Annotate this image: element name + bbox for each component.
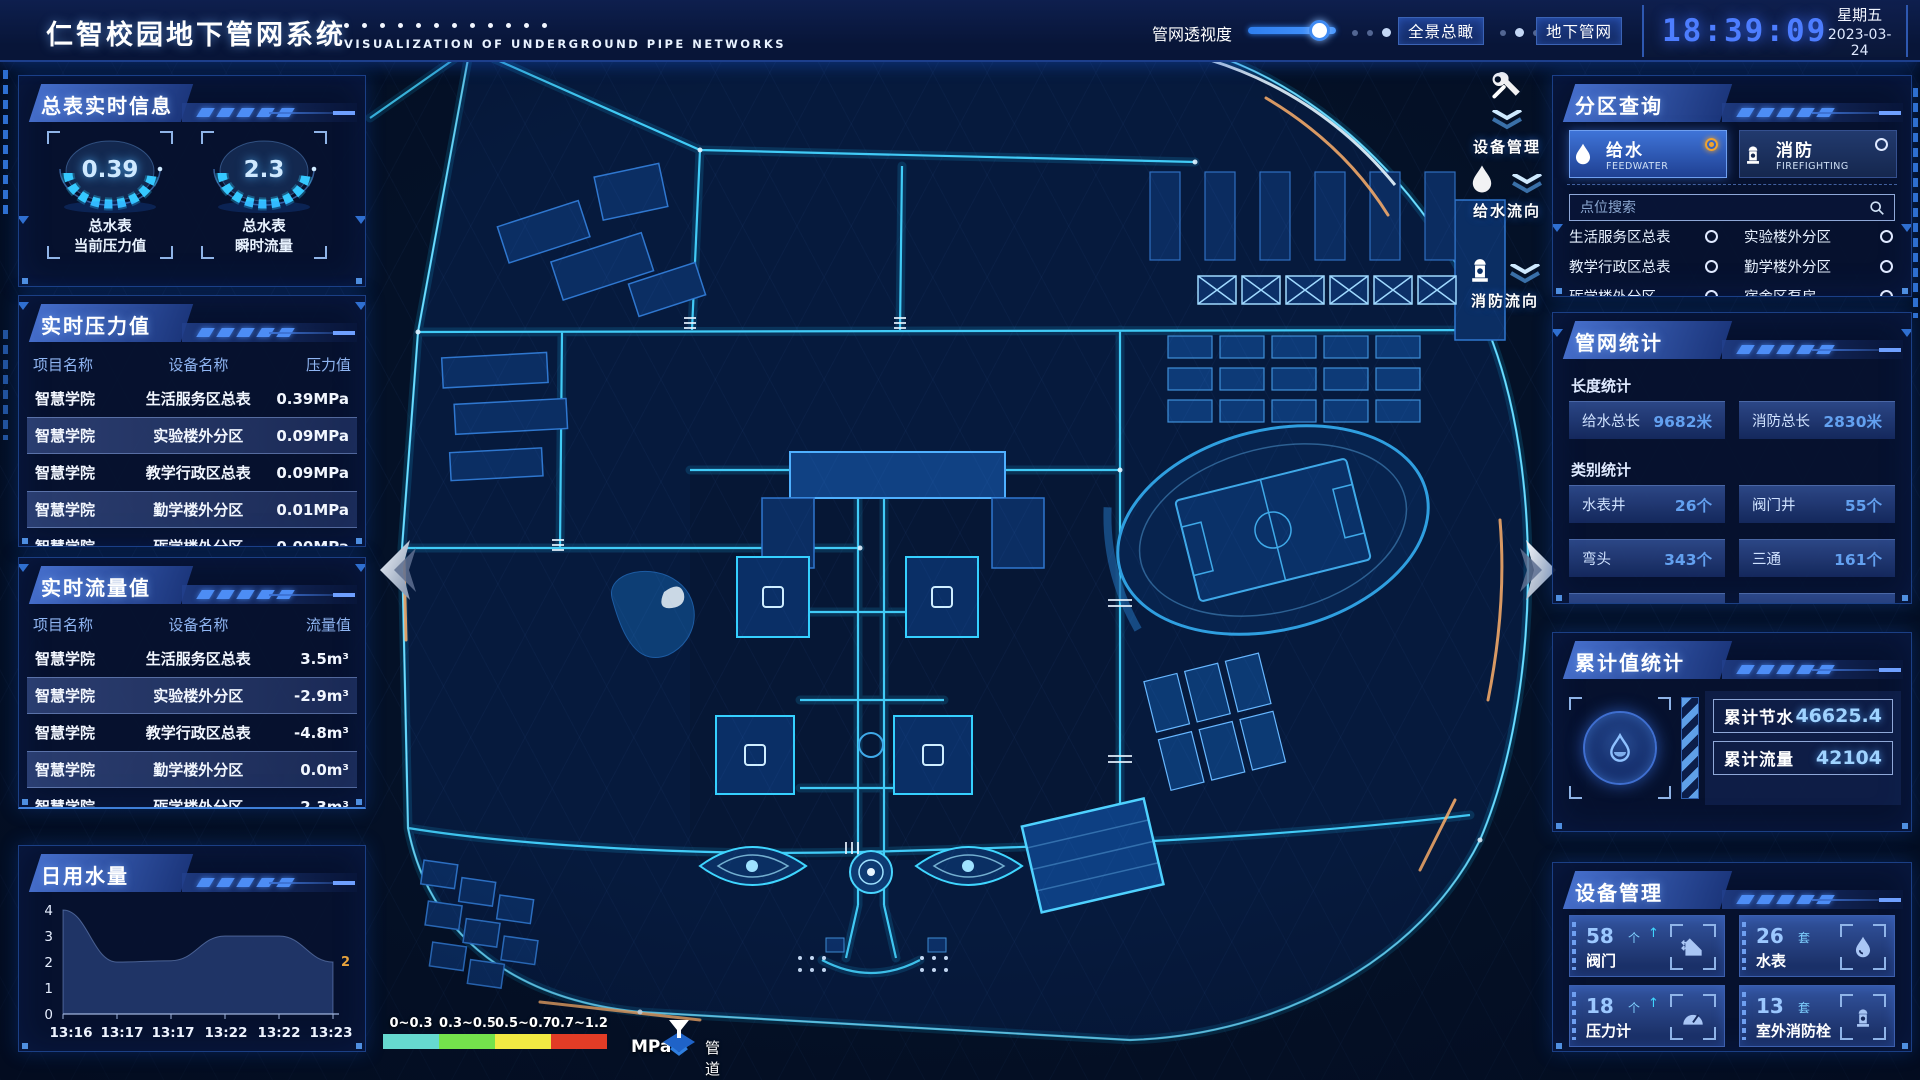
section-title: 分区查询 bbox=[1575, 90, 1663, 119]
gauge-value: 0.39 bbox=[47, 157, 173, 183]
chevron-down-icon bbox=[1505, 174, 1549, 196]
svg-text:4: 4 bbox=[44, 903, 53, 919]
table-header: 项目名称 设备名称 压力值 bbox=[33, 354, 351, 375]
tab-label: 消防 bbox=[1776, 136, 1849, 161]
pressure-gauge-icon bbox=[1670, 994, 1716, 1040]
svg-text:13:17: 13:17 bbox=[152, 1025, 195, 1041]
table-row: 智慧学院实验楼外分区0.09MPa bbox=[27, 417, 357, 454]
svg-text:1: 1 bbox=[44, 981, 53, 997]
legend-range-labels: 0~0.3 0.3~0.5 0.5~0.7 0.7~1.2 bbox=[383, 1016, 607, 1031]
device-card-valve[interactable]: 58 个 ↑ 阀门 bbox=[1569, 915, 1725, 977]
table-row: 智慧学院教学行政区总表0.09MPa bbox=[27, 454, 357, 491]
legend-range-label: 0.5~0.7 bbox=[495, 1016, 551, 1031]
stat-box-clipped bbox=[1569, 593, 1725, 604]
column-header: 项目名称 bbox=[33, 354, 128, 375]
stat-box: 阀门井 55个 bbox=[1739, 485, 1895, 523]
float-label: 消防流向 bbox=[1462, 290, 1548, 311]
app-title: 仁智校园地下管网系统 bbox=[46, 13, 346, 52]
water-drop-icon bbox=[1604, 732, 1636, 764]
flow-table: 智慧学院生活服务区总表3.5m³ 智慧学院实验楼外分区-2.9m³ 智慧学院教学… bbox=[27, 640, 357, 809]
realtime-pressure-section: 实时压力值 项目名称 设备名称 压力值 智慧学院生活服务区总表0.39MPa 智… bbox=[18, 295, 366, 547]
clock-panel: 18:39:09 星期五 2023-03-24 bbox=[1642, 5, 1908, 57]
zone-item[interactable]: 砺学楼外分区 bbox=[1569, 281, 1732, 297]
master-meter-section: 总表实时信息 0.39 总水表 当前压力值 bbox=[18, 75, 366, 287]
cumulative-row: 累计节水 46625.4 bbox=[1713, 699, 1893, 733]
arrow-up-icon: ↑ bbox=[1648, 926, 1659, 941]
legend-title: 管道压力 bbox=[705, 1037, 721, 1080]
tab-firefighting[interactable]: 消防 FIREFIGHTING bbox=[1739, 130, 1897, 178]
svg-text:13:22: 13:22 bbox=[205, 1025, 248, 1041]
legend-color-segment bbox=[495, 1034, 551, 1049]
zone-radio[interactable] bbox=[1705, 290, 1718, 298]
stat-box: 给水总长 9682米 bbox=[1569, 401, 1725, 439]
zone-radio[interactable] bbox=[1705, 230, 1718, 243]
table-row: 智慧学院勤学楼外分区0.01MPa bbox=[27, 491, 357, 528]
section-title: 日用水量 bbox=[41, 860, 129, 889]
slider-knob[interactable] bbox=[1309, 20, 1330, 41]
pipe-opacity-slider[interactable] bbox=[1248, 27, 1336, 34]
zone-radio[interactable] bbox=[1880, 230, 1893, 243]
table-row: 智慧学院生活服务区总表0.39MPa bbox=[27, 380, 357, 417]
section-header: 累计值统计 bbox=[1561, 641, 1903, 679]
chevron-down-icon bbox=[1485, 110, 1529, 132]
stat-box: 水表井 26个 bbox=[1569, 485, 1725, 523]
gauge-value: 2.3 bbox=[201, 157, 327, 183]
legend-range-label: 0~0.3 bbox=[383, 1016, 439, 1031]
app-header: 仁智校园地下管网系统 VISUALIZATION OF UNDERGROUND … bbox=[0, 0, 1920, 62]
device-management-section: 设备管理 58 个 ↑ 阀门 26 套 水表 bbox=[1552, 862, 1912, 1052]
section-header: 管网统计 bbox=[1561, 321, 1903, 359]
column-header: 设备名称 bbox=[128, 354, 268, 375]
float-label: 设备管理 bbox=[1464, 136, 1550, 157]
section-title: 设备管理 bbox=[1575, 877, 1663, 906]
dots-decoration bbox=[1500, 28, 1539, 37]
device-card-outdoor-hydrant[interactable]: 13 套 室外消防栓 bbox=[1739, 985, 1895, 1047]
column-header: 设备名称 bbox=[128, 614, 268, 635]
tab-feedwater[interactable]: 给水 FEEDWATER bbox=[1569, 130, 1727, 178]
tab-radio[interactable] bbox=[1875, 138, 1888, 151]
tab-sublabel: FEEDWATER bbox=[1606, 161, 1668, 172]
zone-radio[interactable] bbox=[1705, 260, 1718, 273]
hydrant-icon bbox=[1740, 141, 1766, 167]
stat-box: 三通 161个 bbox=[1739, 539, 1895, 577]
column-header: 项目名称 bbox=[33, 614, 128, 635]
search-box bbox=[1569, 194, 1895, 221]
zone-query-section: 分区查询 给水 FEEDWATER 消防 FIREFIGHTING bbox=[1552, 75, 1912, 297]
tab-label: 给水 bbox=[1606, 136, 1668, 161]
edge-decoration bbox=[1913, 88, 1918, 318]
search-icon[interactable] bbox=[1868, 199, 1886, 217]
svg-text:2: 2 bbox=[44, 955, 53, 971]
gauge-label: 总水表 bbox=[201, 215, 327, 236]
svg-text:13:16: 13:16 bbox=[50, 1025, 93, 1041]
water-drop-icon bbox=[1465, 162, 1499, 196]
cumulative-icon-box bbox=[1569, 697, 1671, 799]
legend-range-label: 0.3~0.5 bbox=[439, 1016, 495, 1031]
table-row: 智慧学院生活服务区总表3.5m³ bbox=[27, 640, 357, 677]
section-header: 实时流量值 bbox=[27, 566, 357, 604]
pipe-stats-section: 管网统计 长度统计 给水总长 9682米 消防总长 2830米 类别统计 水表井… bbox=[1552, 312, 1912, 604]
pipe-opacity-label: 管网透视度 bbox=[1152, 21, 1232, 45]
table-row: 智慧学院砺学楼外分区2.3m³ bbox=[27, 788, 357, 809]
table-row: 智慧学院砺学楼外分区0.00MPa bbox=[27, 528, 357, 547]
zone-item[interactable]: 教学行政区总表 bbox=[1569, 251, 1732, 281]
arrow-up-icon: ↑ bbox=[1648, 996, 1659, 1011]
wrench-icon bbox=[1488, 68, 1526, 106]
edge-decoration bbox=[3, 330, 8, 440]
stat-box: 消防总长 2830米 bbox=[1739, 401, 1895, 439]
svg-text:13:17: 13:17 bbox=[101, 1025, 144, 1041]
column-header: 压力值 bbox=[268, 354, 351, 375]
gauge-label: 当前压力值 bbox=[47, 235, 173, 256]
float-label: 给水流向 bbox=[1464, 200, 1550, 221]
legend-color-segment bbox=[551, 1034, 607, 1049]
pressure-gauge: 0.39 总水表 当前压力值 bbox=[47, 131, 173, 259]
zone-radio[interactable] bbox=[1880, 290, 1893, 298]
svg-text:2: 2 bbox=[341, 955, 350, 970]
cumulative-row: 累计流量 42104 bbox=[1713, 741, 1893, 775]
device-card-water-meter[interactable]: 26 套 水表 bbox=[1739, 915, 1895, 977]
dashboard-root: 设备管理 给水流向 消防流向 bbox=[0, 0, 1920, 1080]
section-header: 设备管理 bbox=[1561, 871, 1903, 909]
legend-range-label: 0.7~1.2 bbox=[551, 1016, 607, 1031]
clock-weekday: 星期五 bbox=[1827, 4, 1892, 25]
table-header: 项目名称 设备名称 流量值 bbox=[33, 614, 351, 635]
legend-color-segment bbox=[383, 1034, 439, 1049]
section-header: 日用水量 bbox=[27, 854, 357, 892]
cumulative-values: 累计节水 46625.4 累计流量 42104 bbox=[1705, 691, 1901, 805]
table-row: 智慧学院实验楼外分区-2.9m³ bbox=[27, 677, 357, 714]
app-subtitle: VISUALIZATION OF UNDERGROUND PIPE NETWOR… bbox=[344, 37, 786, 51]
feedwater-flow-map-button[interactable]: 给水流向 bbox=[1464, 162, 1550, 221]
svg-text:13:23: 13:23 bbox=[310, 1025, 353, 1041]
pipe-pressure-legend: 0~0.3 0.3~0.5 0.5~0.7 0.7~1.2 MPa 管道压力 bbox=[383, 1016, 607, 1049]
cumulative-stats-section: 累计值统计 累计节水 46625.4 累计流量 42104 bbox=[1552, 632, 1912, 832]
stats-group-label: 类别统计 bbox=[1571, 459, 1631, 480]
hydrant-icon bbox=[1463, 252, 1497, 286]
search-input[interactable] bbox=[1570, 200, 1868, 216]
dots-decoration bbox=[1352, 28, 1391, 37]
section-title: 总表实时信息 bbox=[41, 90, 173, 119]
device-manage-map-button[interactable]: 设备管理 bbox=[1464, 68, 1550, 157]
zone-list: 生活服务区总表 实验楼外分区 教学行政区总表 勤学楼外分区 砺学楼外分区 宿舍区… bbox=[1569, 221, 1895, 297]
clock-date: 2023-03-24 bbox=[1827, 27, 1892, 59]
valve-icon bbox=[1670, 924, 1716, 970]
table-row: 智慧学院勤学楼外分区0.0m³ bbox=[27, 751, 357, 788]
water-meter-icon bbox=[1840, 924, 1886, 970]
tab-radio[interactable] bbox=[1705, 138, 1718, 151]
daily-water-chart: 4 3 2 1 0 13:16 13:17 13:17 13:22 13:22 … bbox=[23, 896, 363, 1048]
svg-text:13:22: 13:22 bbox=[258, 1025, 301, 1041]
section-title: 实时压力值 bbox=[41, 310, 151, 339]
stats-group-label: 长度统计 bbox=[1571, 375, 1631, 396]
map-pan-left-arrow[interactable] bbox=[372, 538, 418, 602]
realtime-flow-section: 实时流量值 项目名称 设备名称 流量值 智慧学院生活服务区总表3.5m³ 智慧学… bbox=[18, 557, 366, 809]
gauge-label: 瞬时流量 bbox=[201, 235, 327, 256]
stat-box-clipped bbox=[1739, 593, 1895, 604]
section-header: 总表实时信息 bbox=[27, 84, 357, 122]
device-card-pressure-gauge[interactable]: 18 个 ↑ 压力计 bbox=[1569, 985, 1725, 1047]
title-dots-decoration bbox=[344, 23, 547, 28]
legend-color-bar bbox=[383, 1034, 607, 1049]
zone-item[interactable]: 宿舍区泵房 bbox=[1732, 281, 1895, 297]
gauge-label: 总水表 bbox=[47, 215, 173, 236]
table-row: 智慧学院教学行政区总表-4.8m³ bbox=[27, 714, 357, 751]
zone-item[interactable]: 生活服务区总表 bbox=[1569, 221, 1732, 251]
flow-gauge: 2.3 总水表 瞬时流量 bbox=[201, 131, 327, 259]
column-header: 流量值 bbox=[268, 614, 351, 635]
divider bbox=[1567, 184, 1897, 185]
daily-water-section: 日用水量 4 3 2 1 0 13:16 13:17 13:17 13:22 1… bbox=[18, 845, 366, 1052]
section-title: 管网统计 bbox=[1575, 327, 1663, 356]
tab-sublabel: FIREFIGHTING bbox=[1776, 161, 1849, 172]
stat-box: 弯头 343个 bbox=[1569, 539, 1725, 577]
outdoor-hydrant-icon bbox=[1840, 994, 1886, 1040]
chevron-down-icon bbox=[1503, 264, 1547, 286]
pressure-table: 智慧学院生活服务区总表0.39MPa 智慧学院实验楼外分区0.09MPa 智慧学… bbox=[27, 380, 357, 547]
section-header: 分区查询 bbox=[1561, 84, 1903, 122]
section-title: 实时流量值 bbox=[41, 572, 151, 601]
svg-text:0: 0 bbox=[44, 1007, 53, 1023]
water-drop-icon bbox=[1570, 141, 1596, 167]
panorama-view-button[interactable]: 全景总瞰 bbox=[1398, 17, 1484, 45]
funnel-pressure-icon bbox=[661, 1018, 697, 1058]
legend-color-segment bbox=[439, 1034, 495, 1049]
section-title: 累计值统计 bbox=[1575, 647, 1685, 676]
svg-text:3: 3 bbox=[44, 929, 53, 945]
section-header: 实时压力值 bbox=[27, 304, 357, 342]
underground-pipes-button[interactable]: 地下管网 bbox=[1536, 17, 1622, 45]
edge-decoration bbox=[3, 70, 8, 220]
zone-radio[interactable] bbox=[1880, 260, 1893, 273]
clock-time: 18:39:09 bbox=[1662, 13, 1827, 49]
zone-item[interactable]: 实验楼外分区 bbox=[1732, 221, 1895, 251]
fire-flow-map-button[interactable]: 消防流向 bbox=[1462, 252, 1548, 311]
zone-item[interactable]: 勤学楼外分区 bbox=[1732, 251, 1895, 281]
hazard-stripe-decoration bbox=[1681, 697, 1699, 799]
